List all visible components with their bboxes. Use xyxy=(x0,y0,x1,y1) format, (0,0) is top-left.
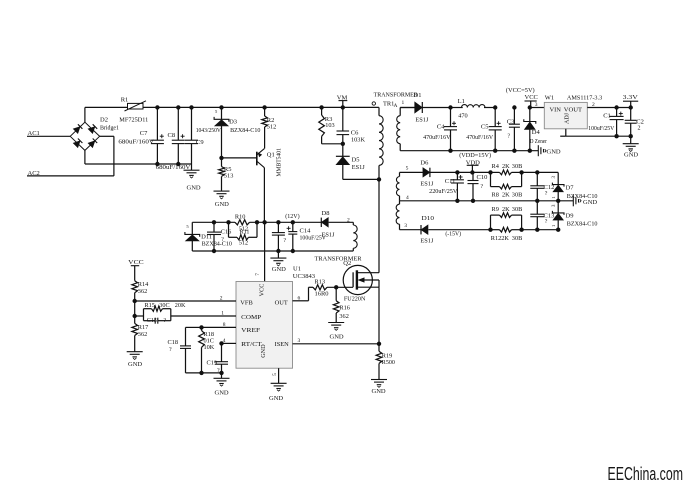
svg-text:C6: C6 xyxy=(351,130,359,137)
svg-text:3: 3 xyxy=(535,102,538,108)
svg-text:C2: C2 xyxy=(636,118,644,125)
svg-text:VCC: VCC xyxy=(259,284,266,297)
svg-text:2K: 2K xyxy=(502,206,510,213)
svg-text:ISEN: ISEN xyxy=(275,341,290,348)
svg-text:GND: GND xyxy=(215,201,229,208)
svg-text:COMP: COMP xyxy=(241,314,261,321)
svg-text:R12: R12 xyxy=(491,235,502,242)
svg-text:30B: 30B xyxy=(512,235,523,242)
svg-text:1: 1 xyxy=(551,225,556,227)
svg-text:GND: GND xyxy=(330,333,344,340)
svg-text:FU220N: FU220N xyxy=(344,296,366,303)
svg-text:30B: 30B xyxy=(512,163,523,170)
svg-text:3: 3 xyxy=(404,223,407,229)
svg-text:C15: C15 xyxy=(147,317,157,324)
svg-text:10K: 10K xyxy=(204,344,215,351)
svg-text:680uF/160V: 680uF/160V xyxy=(118,139,154,146)
svg-text:362: 362 xyxy=(138,331,147,338)
svg-text:?: ? xyxy=(164,318,167,324)
svg-text:GND: GND xyxy=(128,361,142,368)
svg-text:470uF/16V: 470uF/16V xyxy=(423,134,451,141)
svg-text:GND: GND xyxy=(583,199,597,206)
svg-text:D7: D7 xyxy=(566,185,575,192)
svg-text:C9: C9 xyxy=(196,139,204,146)
svg-text:C14: C14 xyxy=(300,227,312,234)
svg-text:C5: C5 xyxy=(481,124,489,131)
svg-text:2K: 2K xyxy=(502,192,510,199)
svg-text:ADJ: ADJ xyxy=(564,112,570,124)
svg-text:GND: GND xyxy=(215,389,229,396)
svg-text:UC3843: UC3843 xyxy=(293,273,315,280)
svg-text:ES1J: ES1J xyxy=(420,181,433,188)
svg-text:?: ? xyxy=(481,184,484,190)
svg-text:GND: GND xyxy=(547,148,561,155)
svg-text:W1: W1 xyxy=(545,95,554,102)
svg-text:R500: R500 xyxy=(382,359,395,366)
svg-text:362: 362 xyxy=(339,313,348,320)
svg-text:2: 2 xyxy=(592,102,595,108)
svg-text:512: 512 xyxy=(267,124,276,131)
svg-text:?: ? xyxy=(284,238,287,244)
svg-text:MF725D11: MF725D11 xyxy=(119,117,148,124)
svg-text:100uF/25V: 100uF/25V xyxy=(588,125,614,132)
svg-text:AMS1117-3.3: AMS1117-3.3 xyxy=(567,95,602,102)
svg-text:RT/CT: RT/CT xyxy=(241,341,262,348)
svg-text:5: 5 xyxy=(272,373,278,376)
svg-text:2K: 2K xyxy=(502,163,510,170)
svg-text:VREF: VREF xyxy=(241,327,261,334)
svg-text:(12V): (12V) xyxy=(285,213,299,220)
svg-text:2: 2 xyxy=(638,126,641,132)
svg-text:C10: C10 xyxy=(477,174,488,181)
svg-text:C4: C4 xyxy=(437,124,445,131)
svg-text:C7: C7 xyxy=(140,130,148,137)
svg-text:D3: D3 xyxy=(229,119,237,126)
svg-text:OUT: OUT xyxy=(275,299,288,306)
svg-text:R4: R4 xyxy=(492,163,500,170)
svg-text:R1: R1 xyxy=(121,97,129,104)
svg-text:Q1: Q1 xyxy=(267,152,275,159)
svg-text:VOUT: VOUT xyxy=(564,107,582,114)
svg-text:R11: R11 xyxy=(240,230,250,236)
svg-text:GND: GND xyxy=(372,388,386,395)
svg-text:D2: D2 xyxy=(100,117,108,124)
svg-text:20K: 20K xyxy=(175,302,186,309)
svg-text:Q2: Q2 xyxy=(343,260,351,267)
svg-text:Bridge1: Bridge1 xyxy=(100,125,119,132)
svg-text:R14: R14 xyxy=(138,281,149,288)
svg-text:GND: GND xyxy=(260,344,267,358)
svg-text:?: ? xyxy=(169,347,172,353)
svg-text:C18: C18 xyxy=(168,339,179,346)
svg-text:VFB: VFB xyxy=(240,299,252,306)
svg-text:30B: 30B xyxy=(512,206,523,213)
svg-text:3.3V: 3.3V xyxy=(623,94,639,101)
svg-text:GND: GND xyxy=(269,395,283,402)
svg-text:4: 4 xyxy=(406,195,409,201)
svg-text:1043/250V: 1043/250V xyxy=(196,127,222,134)
svg-text:TRANSFORMER: TRANSFORMER xyxy=(374,91,419,98)
svg-text:GND: GND xyxy=(624,151,638,158)
svg-text:R9: R9 xyxy=(492,206,499,213)
svg-text:5: 5 xyxy=(406,166,409,172)
svg-text:ES1J: ES1J xyxy=(420,238,433,245)
svg-text:ES1J: ES1J xyxy=(322,231,335,238)
svg-text:470: 470 xyxy=(458,112,467,119)
svg-text:C16: C16 xyxy=(221,228,232,235)
svg-text:16R0: 16R0 xyxy=(315,291,329,298)
svg-text:3: 3 xyxy=(298,338,301,344)
svg-text:D6: D6 xyxy=(420,159,429,166)
svg-text:TRANSFORMER: TRANSFORMER xyxy=(315,256,363,263)
svg-text:R17: R17 xyxy=(138,324,149,331)
svg-text:ES1J: ES1J xyxy=(415,116,428,123)
svg-text:1: 1 xyxy=(551,196,556,198)
svg-text:C11: C11 xyxy=(445,178,456,185)
svg-text:470uF/16V: 470uF/16V xyxy=(466,134,493,141)
svg-text:ES1J: ES1J xyxy=(352,164,365,171)
svg-text:220uF/25V: 220uF/25V xyxy=(429,188,458,195)
svg-text:?: ? xyxy=(508,134,511,140)
svg-text:513: 513 xyxy=(224,172,233,179)
svg-text:?: ? xyxy=(545,191,548,197)
svg-text:D Zener: D Zener xyxy=(530,138,548,145)
svg-text:?: ? xyxy=(545,219,548,225)
svg-text:D9: D9 xyxy=(566,212,574,219)
svg-text:1: 1 xyxy=(402,100,405,106)
svg-text:(-15V): (-15V) xyxy=(445,231,461,238)
svg-text:MMBT5401: MMBT5401 xyxy=(276,148,283,176)
svg-text:30B: 30B xyxy=(512,192,523,199)
svg-text:D4: D4 xyxy=(532,129,541,136)
svg-text:103: 103 xyxy=(325,122,334,129)
svg-text:?: ? xyxy=(221,237,224,243)
svg-text:R15: R15 xyxy=(145,302,155,309)
svg-text:L1: L1 xyxy=(458,98,465,105)
svg-text:BZX84-C10: BZX84-C10 xyxy=(230,127,260,134)
svg-text:C3: C3 xyxy=(507,119,515,126)
svg-text:C19: C19 xyxy=(207,360,218,367)
svg-text:BZX84-C10: BZX84-C10 xyxy=(202,241,232,248)
svg-text:U1: U1 xyxy=(293,266,301,273)
svg-text:VIN: VIN xyxy=(550,107,562,114)
svg-text:7: 7 xyxy=(255,273,261,276)
svg-text:R16: R16 xyxy=(339,305,350,312)
svg-text:C8: C8 xyxy=(168,132,176,139)
svg-text:D8: D8 xyxy=(322,210,330,217)
svg-text:30C: 30C xyxy=(159,302,169,309)
svg-text:(VDD=15V): (VDD=15V) xyxy=(459,152,491,159)
svg-text:R8: R8 xyxy=(492,192,499,199)
svg-text:R10: R10 xyxy=(235,214,246,221)
svg-text:D10: D10 xyxy=(422,215,435,222)
svg-text:D5: D5 xyxy=(352,157,360,164)
svg-text:GND: GND xyxy=(272,266,286,273)
svg-text:A: A xyxy=(394,103,398,109)
svg-text:VCC: VCC xyxy=(128,259,144,266)
svg-text:(VCC=5V): (VCC=5V) xyxy=(506,87,535,94)
svg-text:103K: 103K xyxy=(351,137,365,144)
svg-text:512: 512 xyxy=(239,241,248,247)
svg-text:D1: D1 xyxy=(414,92,422,99)
svg-text:C1: C1 xyxy=(603,113,611,120)
svg-text:R13: R13 xyxy=(315,278,326,285)
svg-text:EEChina.com: EEChina.com xyxy=(608,463,684,484)
svg-text:362: 362 xyxy=(138,288,147,295)
svg-text:2K: 2K xyxy=(501,235,509,242)
svg-text:VCC: VCC xyxy=(525,94,538,101)
svg-text:GND: GND xyxy=(187,185,201,192)
svg-text:BZX84-C10: BZX84-C10 xyxy=(567,221,598,228)
